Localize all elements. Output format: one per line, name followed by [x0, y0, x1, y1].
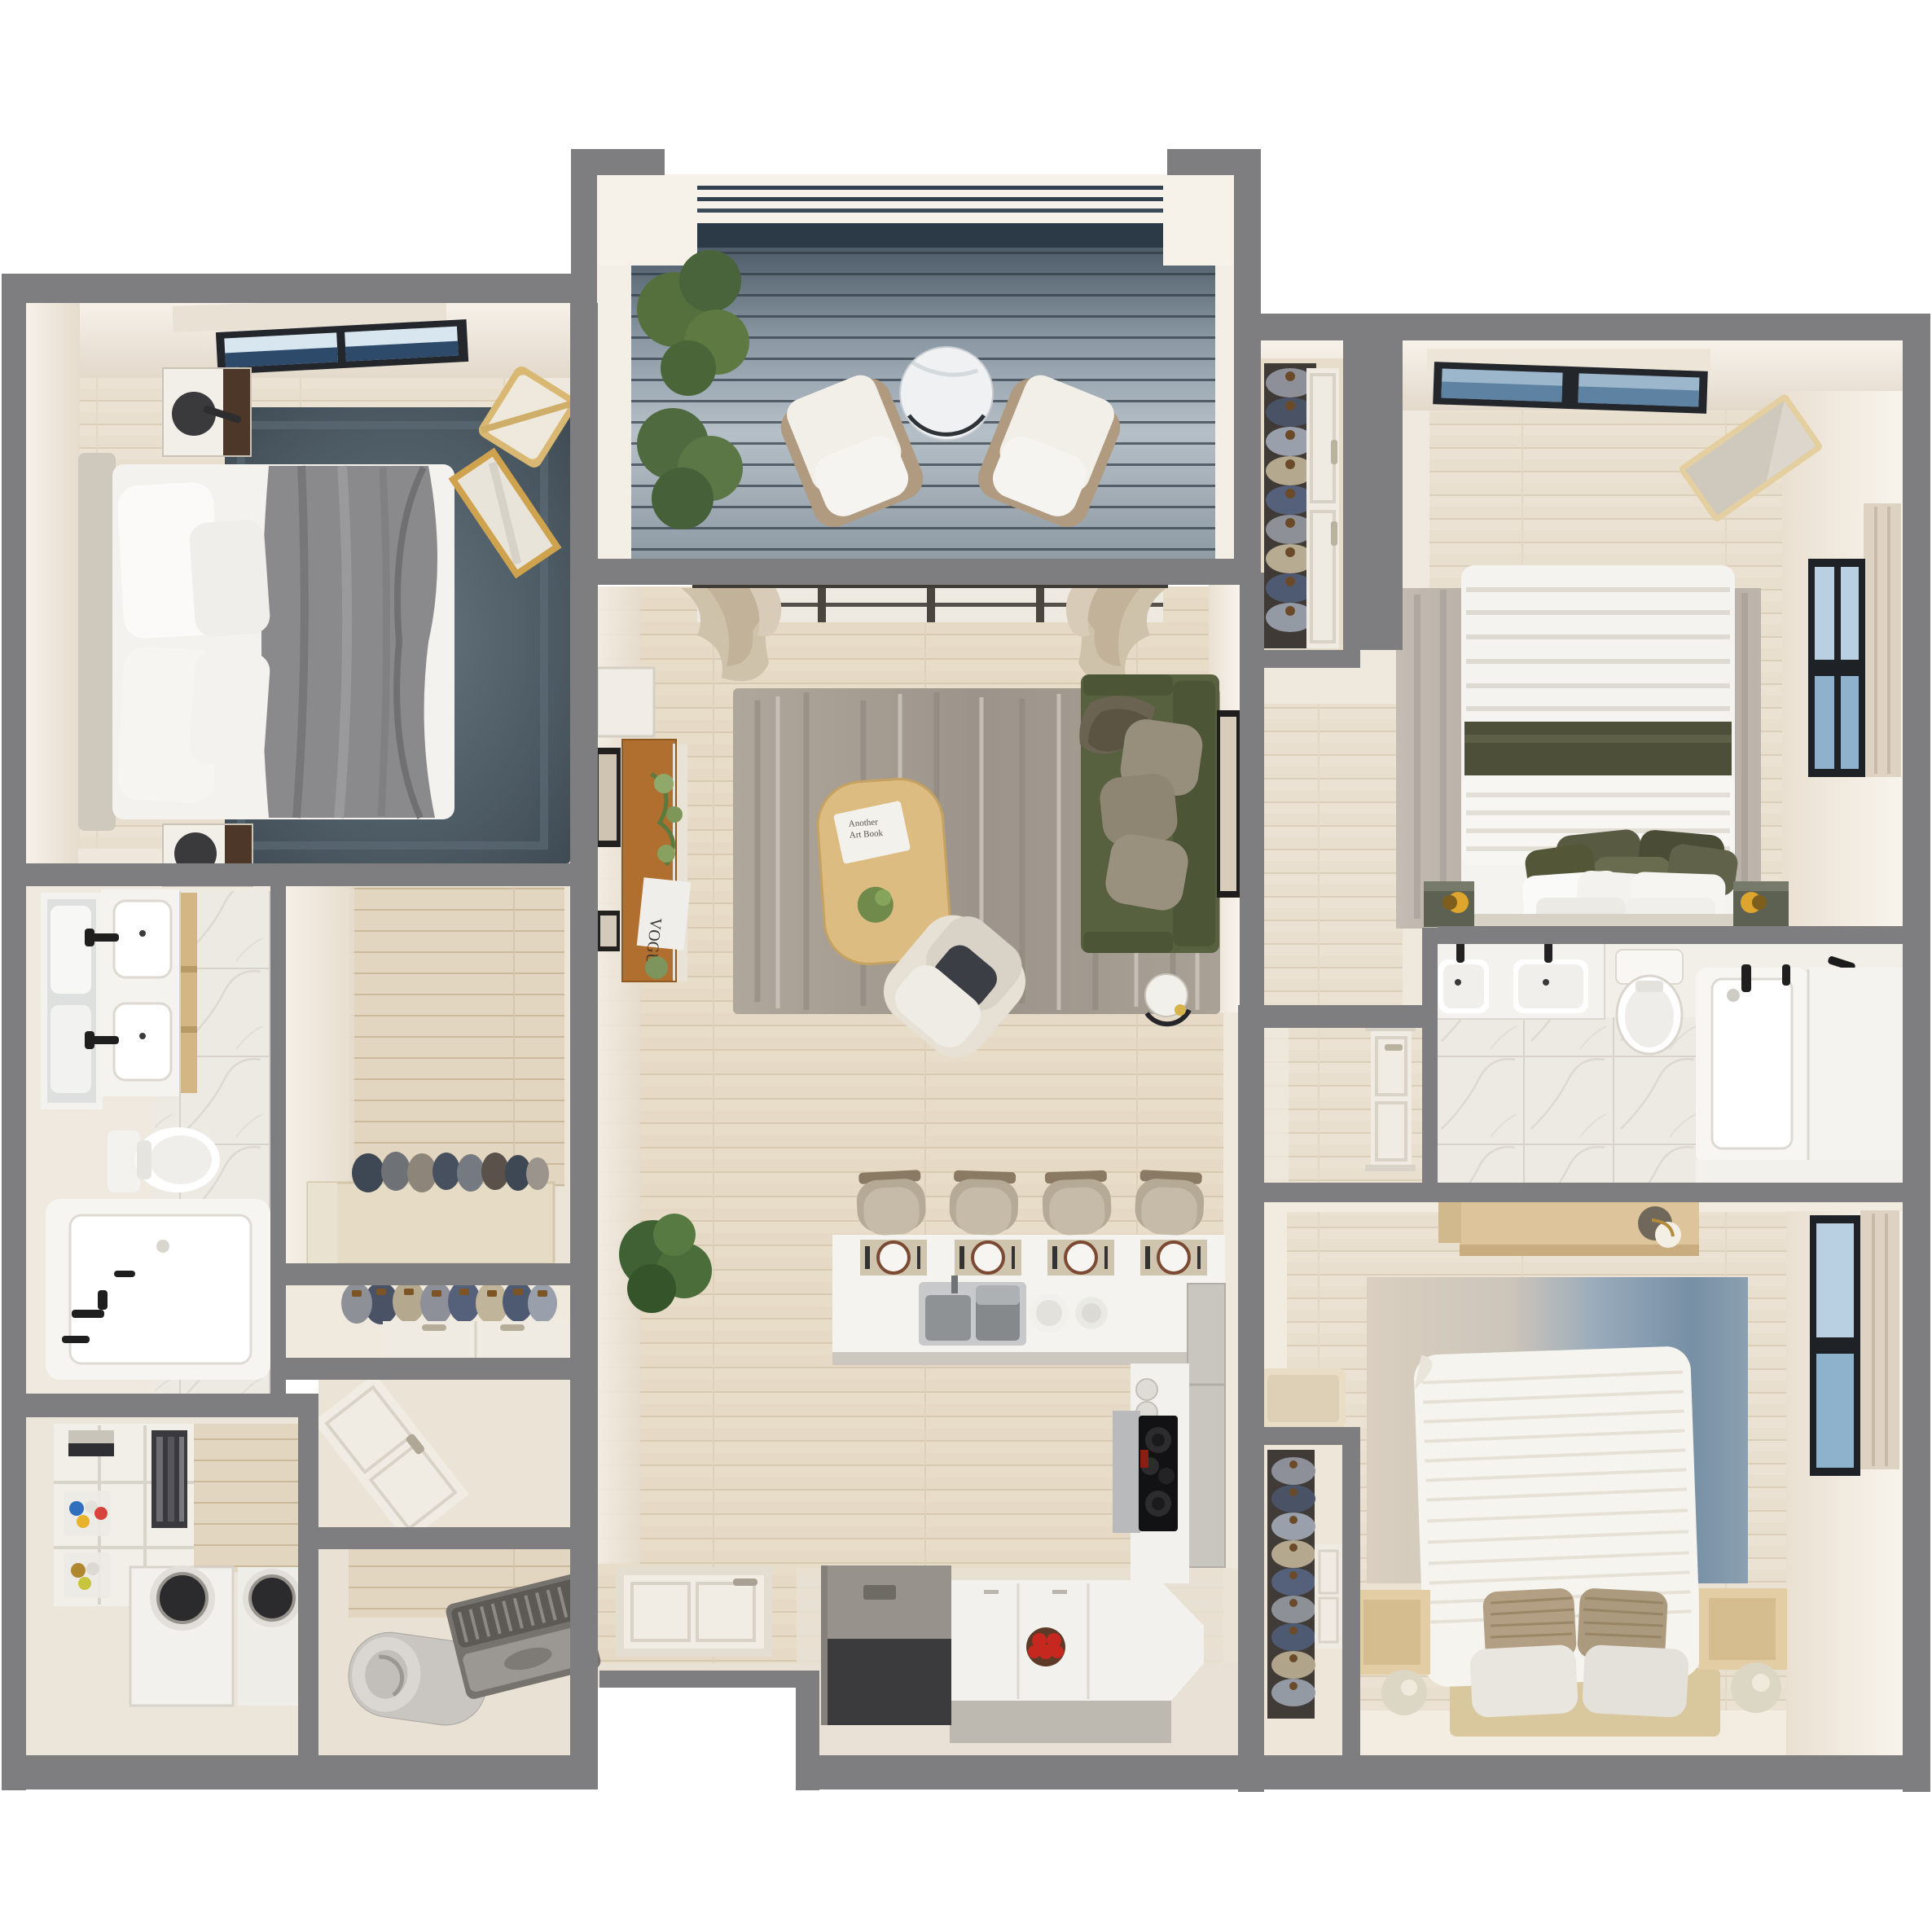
svg-text:Another: Another	[848, 817, 878, 829]
